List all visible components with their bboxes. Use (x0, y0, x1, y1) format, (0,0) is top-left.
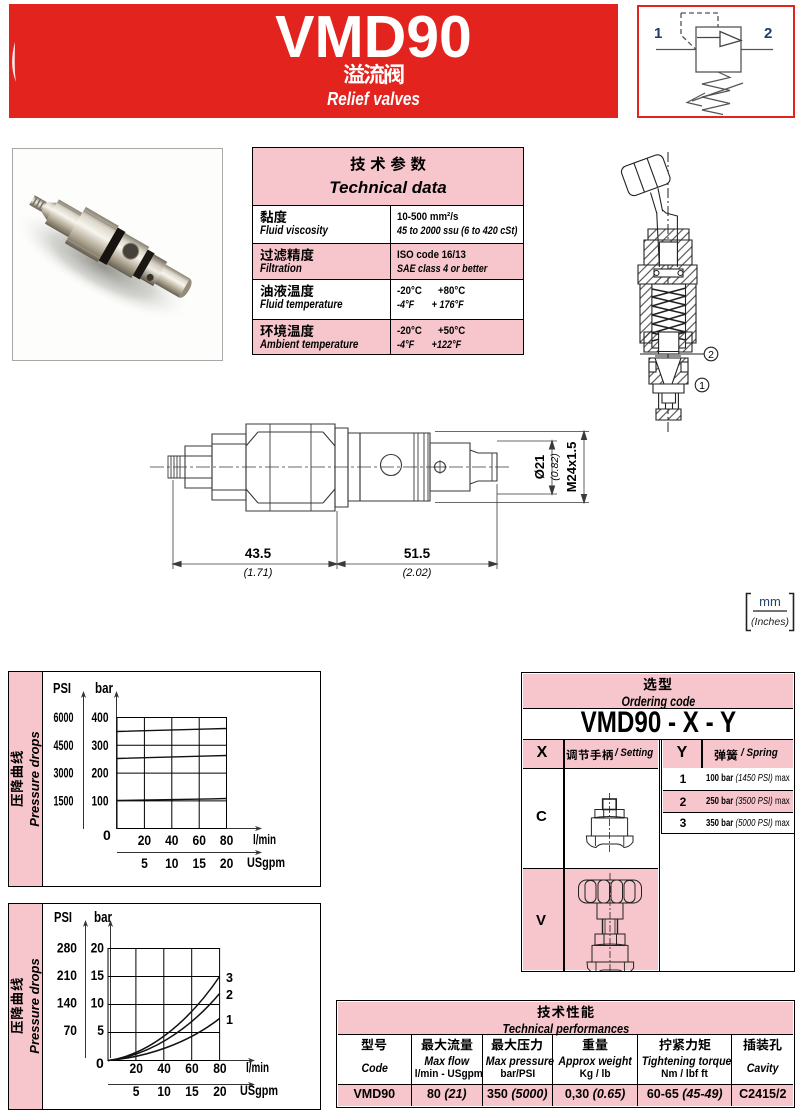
svg-text:15: 15 (91, 968, 105, 983)
svg-text:USgpm: USgpm (240, 1083, 278, 1098)
svg-text:80: 80 (220, 833, 233, 848)
svg-text:mm: mm (759, 594, 781, 609)
svg-text:140: 140 (57, 996, 77, 1011)
svg-text:M24x1.5: M24x1.5 (564, 442, 579, 493)
svg-text:10: 10 (157, 1084, 170, 1099)
svg-text:200: 200 (92, 766, 109, 781)
svg-text:2: 2 (226, 988, 233, 1002)
svg-text:10: 10 (165, 856, 178, 871)
svg-text:300: 300 (92, 738, 109, 753)
svg-text:20: 20 (138, 833, 151, 848)
svg-text:6000: 6000 (54, 710, 74, 725)
svg-text:20: 20 (91, 941, 104, 956)
svg-text:51.5: 51.5 (404, 546, 431, 561)
svg-text:400: 400 (92, 710, 109, 725)
svg-text:210: 210 (57, 968, 77, 983)
svg-text:PSI: PSI (53, 680, 71, 697)
svg-text:10: 10 (91, 996, 104, 1011)
svg-text:Ø21: Ø21 (532, 455, 547, 480)
svg-text:20: 20 (220, 856, 233, 871)
svg-text:15: 15 (193, 856, 207, 871)
svg-text:1500: 1500 (54, 793, 74, 808)
svg-text:80: 80 (213, 1061, 226, 1076)
svg-text:20: 20 (213, 1084, 226, 1099)
svg-text:PSI: PSI (54, 909, 72, 926)
svg-text:5: 5 (97, 1023, 104, 1038)
svg-text:20: 20 (130, 1061, 143, 1076)
svg-text:bar: bar (95, 680, 113, 697)
svg-text:100: 100 (92, 793, 109, 808)
svg-text:5: 5 (141, 856, 148, 871)
svg-text:15: 15 (185, 1084, 199, 1099)
svg-text:(0.82): (0.82) (549, 453, 561, 480)
svg-text:(2.02): (2.02) (403, 567, 432, 579)
svg-text:280: 280 (57, 941, 77, 956)
svg-text:(Inches): (Inches) (751, 616, 789, 628)
svg-text:USgpm: USgpm (247, 855, 285, 870)
svg-text:3: 3 (226, 971, 233, 985)
svg-text:5: 5 (133, 1084, 140, 1099)
svg-text:l/min: l/min (253, 832, 276, 847)
svg-text:4500: 4500 (54, 738, 74, 753)
svg-text:0: 0 (103, 827, 111, 843)
svg-text:1: 1 (226, 1013, 233, 1027)
svg-text:3000: 3000 (54, 766, 74, 781)
svg-text:40: 40 (165, 833, 178, 848)
svg-text:0: 0 (96, 1055, 104, 1071)
svg-text:43.5: 43.5 (245, 546, 272, 561)
svg-text:(1.71): (1.71) (244, 567, 273, 579)
svg-text:40: 40 (157, 1061, 170, 1076)
svg-text:60: 60 (185, 1061, 198, 1076)
svg-text:70: 70 (64, 1023, 77, 1038)
svg-text:60: 60 (193, 833, 206, 848)
svg-text:2: 2 (708, 349, 714, 361)
svg-text:1: 1 (699, 380, 705, 392)
